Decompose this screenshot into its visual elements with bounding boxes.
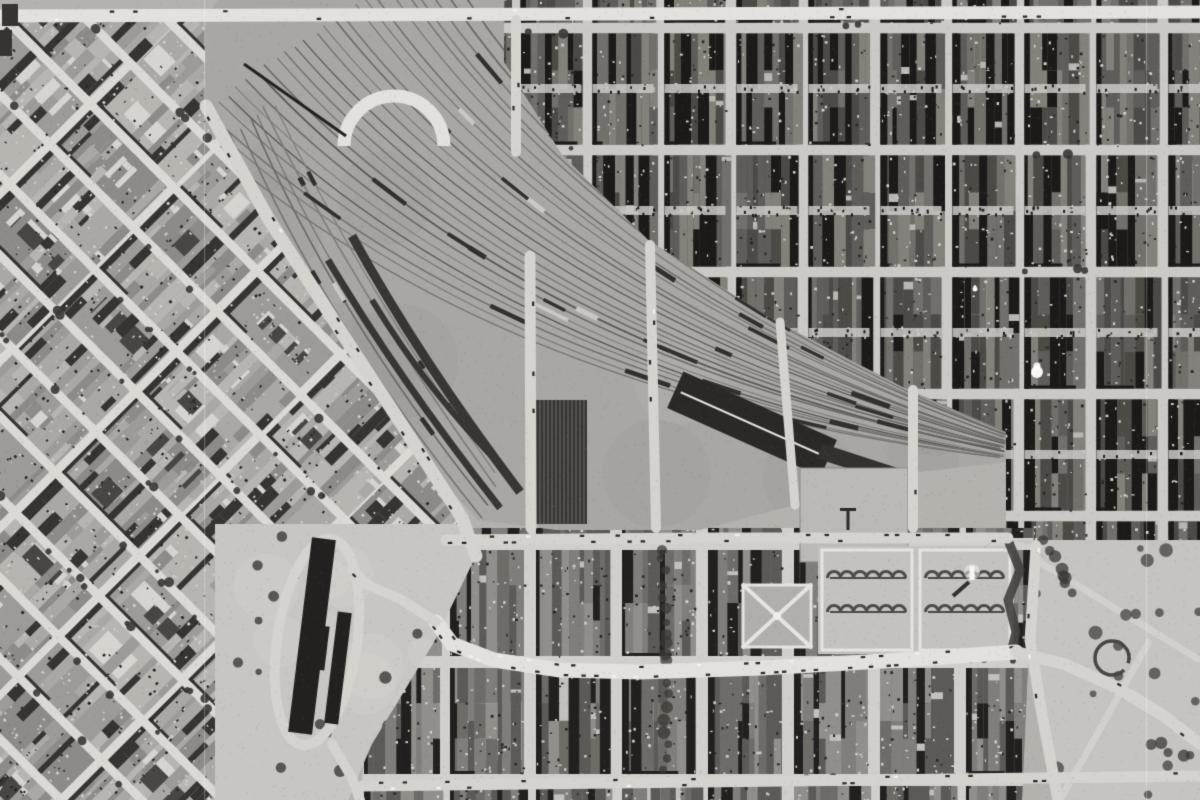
- aerial-photograph: [0, 0, 1200, 800]
- aerial-photo-canvas: [0, 0, 1200, 800]
